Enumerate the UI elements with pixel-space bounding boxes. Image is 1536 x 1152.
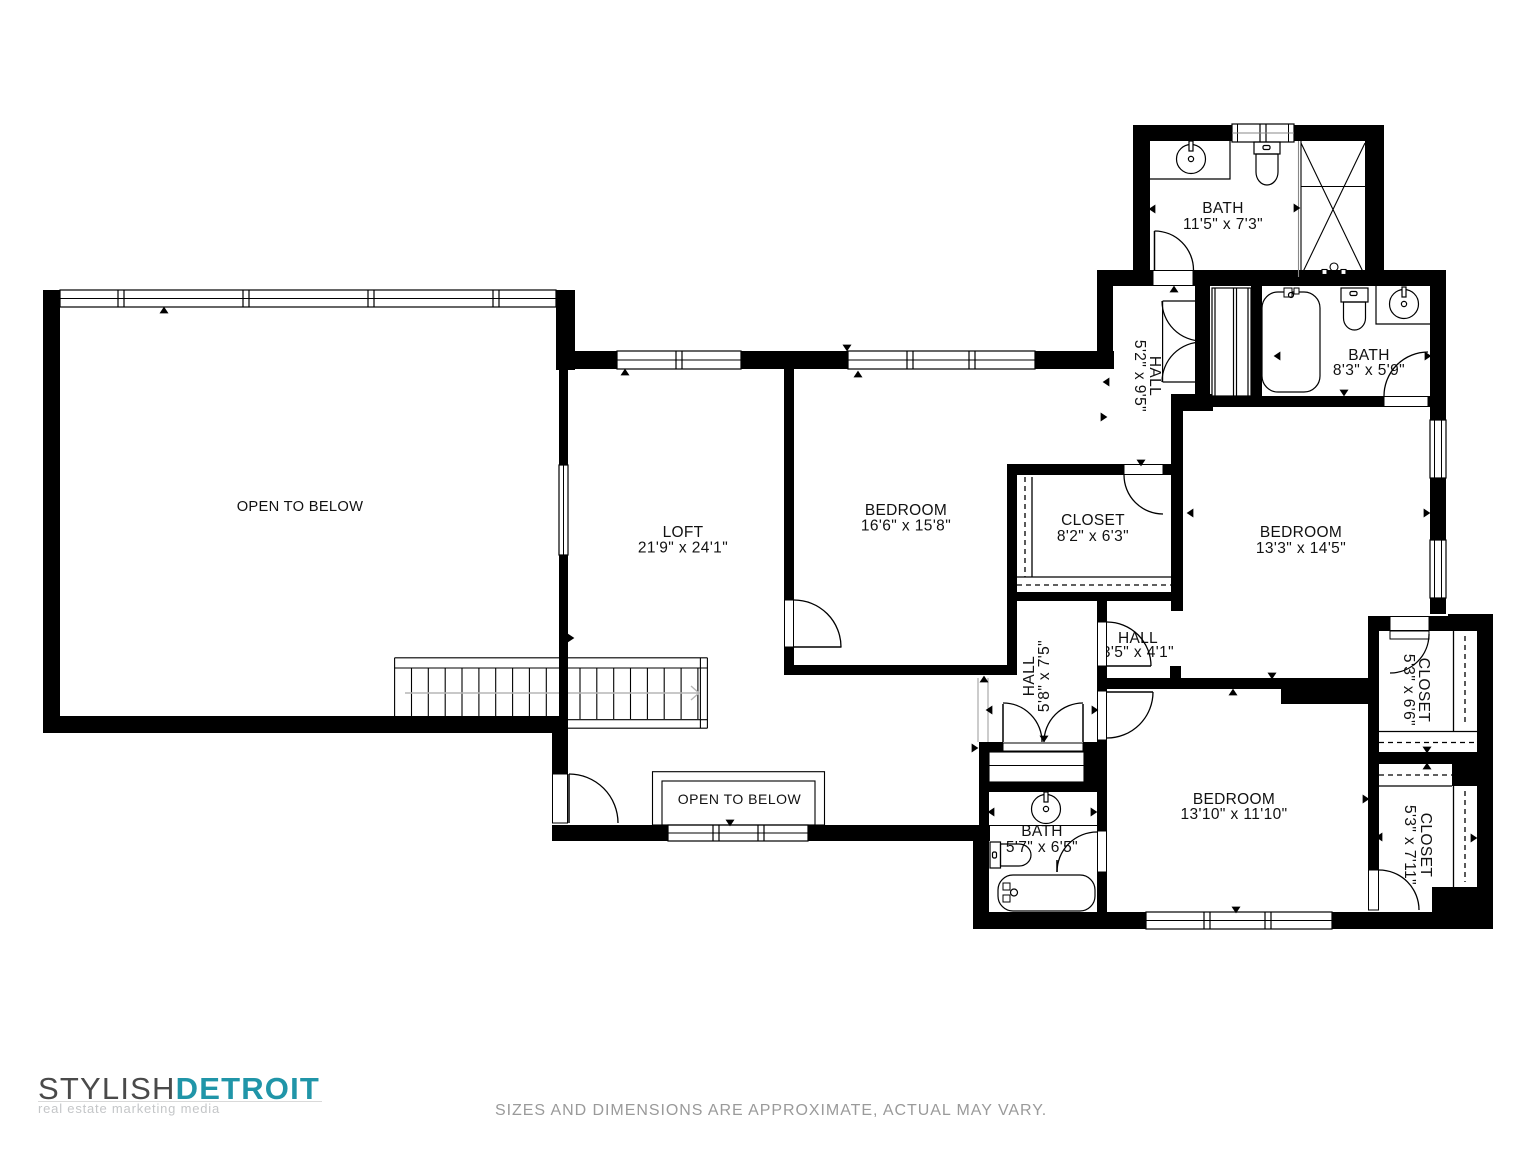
svg-text:8'3" x 5'9": 8'3" x 5'9" [1333,362,1405,379]
svg-text:21'9" x 24'1": 21'9" x 24'1" [638,540,728,557]
svg-text:8'2" x 6'3": 8'2" x 6'3" [1057,528,1129,545]
svg-text:LOFT: LOFT [663,524,704,541]
svg-text:11'5" x 7'3": 11'5" x 7'3" [1183,216,1263,233]
svg-text:BATH: BATH [1202,200,1243,217]
svg-text:5'3" x 7'11": 5'3" x 7'11" [1401,805,1418,885]
svg-text:BEDROOM: BEDROOM [1260,524,1342,541]
svg-text:5'2" x 9'5": 5'2" x 9'5" [1131,340,1148,412]
svg-text:OPEN TO BELOW: OPEN TO BELOW [237,499,364,515]
svg-text:16'6" x 15'8": 16'6" x 15'8" [861,518,951,535]
svg-text:CLOSET: CLOSET [1417,813,1434,878]
svg-text:OPEN TO BELOW: OPEN TO BELOW [678,791,802,807]
svg-text:5'8" x 7'5": 5'8" x 7'5" [1036,640,1053,712]
svg-text:13'10" x 11'10": 13'10" x 11'10" [1180,806,1287,823]
svg-text:5'7" x 6'5": 5'7" x 6'5" [1006,839,1078,856]
svg-text:BEDROOM: BEDROOM [865,502,947,519]
svg-text:3'5" x 4'1": 3'5" x 4'1" [1102,644,1174,661]
svg-text:CLOSET: CLOSET [1061,512,1125,529]
svg-text:13'3" x 14'5": 13'3" x 14'5" [1256,540,1346,557]
